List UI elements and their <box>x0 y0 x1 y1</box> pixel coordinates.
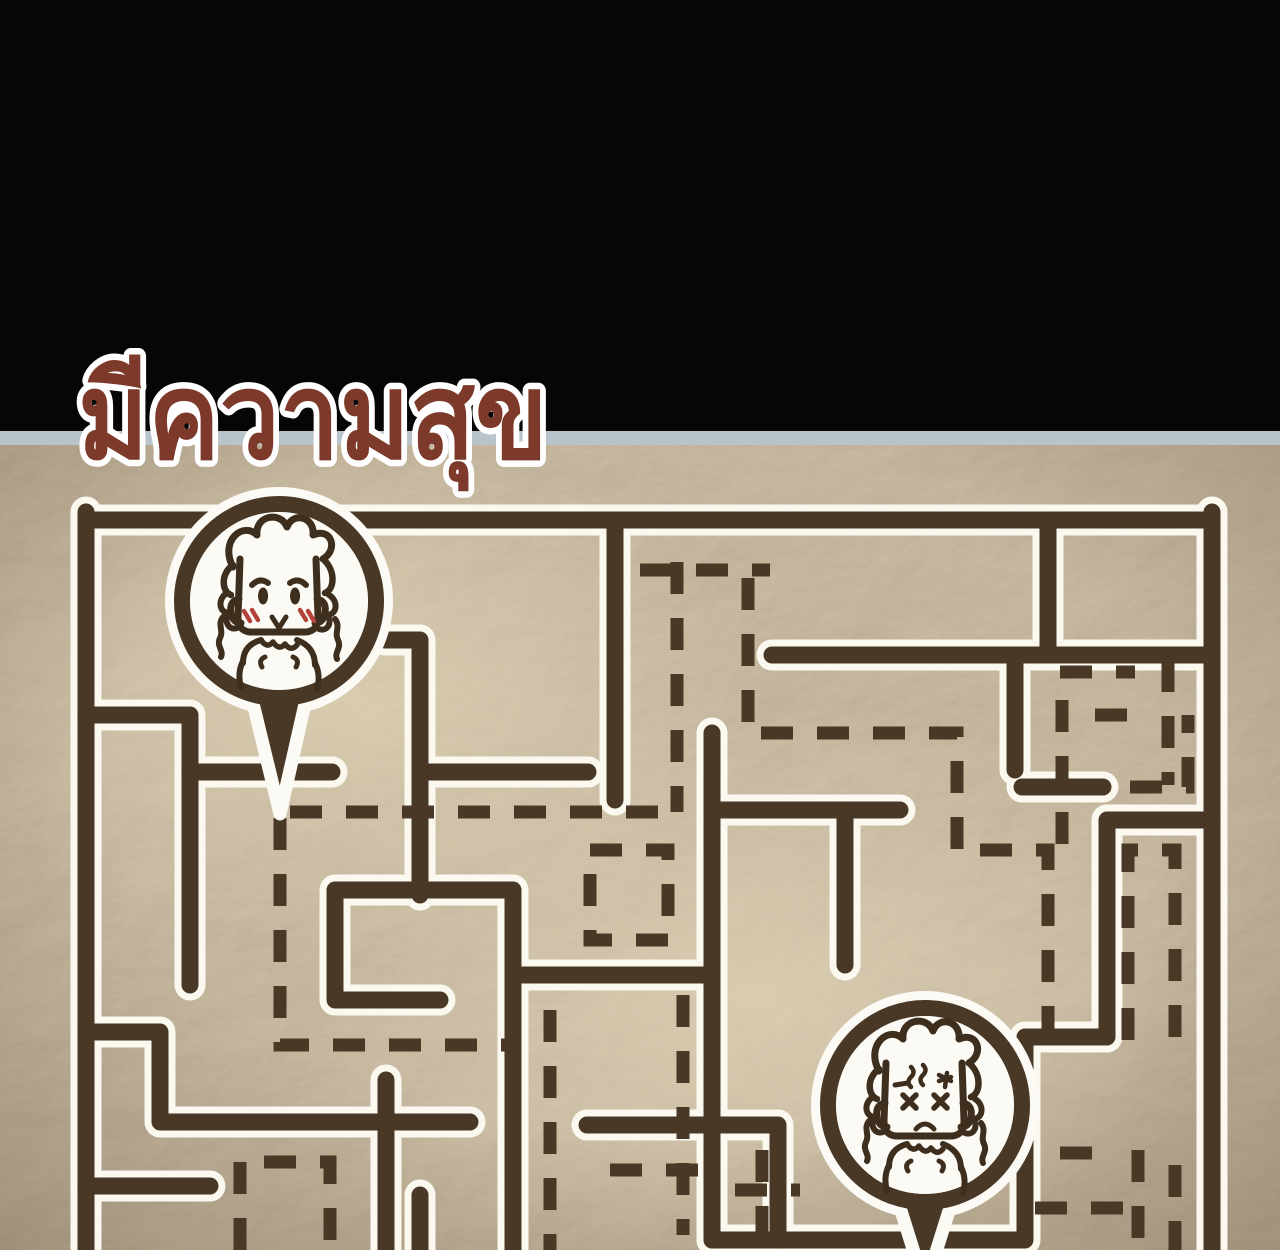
sketch-stroke <box>981 1123 985 1163</box>
panel-title: มีความสุข <box>78 348 548 492</box>
sketch-stroke <box>219 617 223 657</box>
sketch-stroke <box>259 588 268 604</box>
comic-panel: มีความสุข <box>0 0 1280 1250</box>
pin-face-area <box>836 1016 1014 1194</box>
pin-face-area <box>190 512 368 690</box>
sketch-stroke <box>239 661 243 687</box>
sketch-stroke <box>961 1167 965 1193</box>
sketch-stroke <box>315 663 319 689</box>
sketch-stroke <box>335 619 339 659</box>
maze-scene: มีความสุข <box>0 0 1280 1250</box>
sketch-stroke <box>895 1083 908 1085</box>
sketch-stroke <box>865 1121 869 1161</box>
sketch-stroke <box>885 1165 889 1191</box>
sketch-stroke <box>291 588 300 604</box>
